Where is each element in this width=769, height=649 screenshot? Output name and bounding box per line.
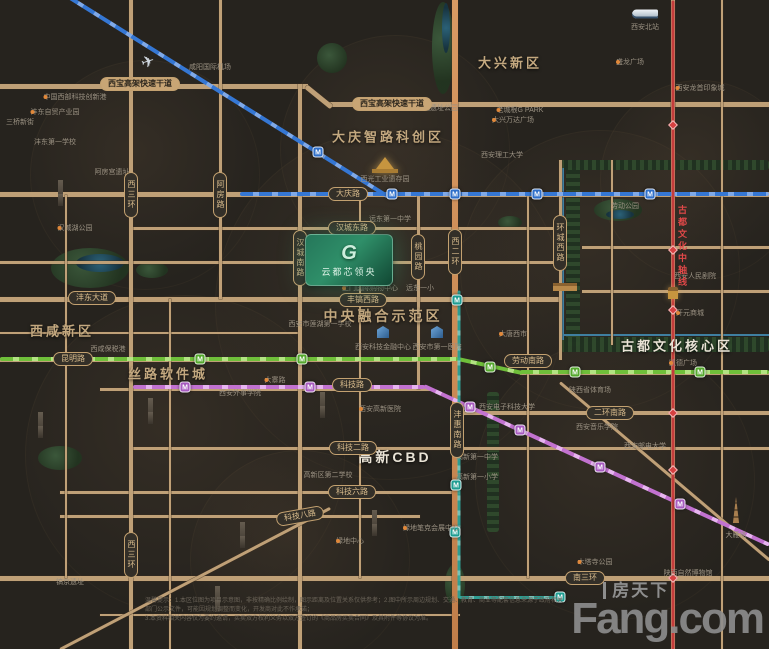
- poi-dot-icon: [578, 560, 582, 564]
- road-badge: 西宝高架快速干道: [100, 77, 180, 91]
- poi-label: 沣东自贸产业园: [31, 107, 80, 117]
- road-segment: [721, 0, 723, 649]
- park-area: [136, 262, 168, 278]
- road-badge: 科技路: [332, 378, 372, 392]
- poi-label: 大兴万达广场: [492, 115, 534, 125]
- poi-label: 劳动公园: [611, 201, 639, 211]
- road-segment: [298, 84, 302, 649]
- poi-label: 木塔寺公园: [578, 557, 613, 567]
- poi-label: 开元商城: [676, 308, 704, 318]
- road-badge: 科技二路: [329, 441, 377, 455]
- poi-label: 西安高新医院: [359, 404, 401, 414]
- district-label: 大兴新区: [478, 53, 542, 72]
- poi-label: 西安电子科技大学: [479, 402, 535, 412]
- poi-label: 高新区第二学校: [304, 470, 353, 480]
- disclaimer-text: 温馨提示：1.本区位图为项目示意图，非按精确比例绘制，图示距离及位置关系仅供参考…: [145, 597, 565, 624]
- road-badge: 沣东大道: [68, 291, 116, 305]
- road-badge: 汉城东路: [328, 221, 376, 235]
- poi-label: 绿地笔克会展中心: [403, 523, 459, 533]
- road-badge: 沣惠南路: [450, 402, 464, 458]
- metro-station-icon: M: [695, 367, 706, 378]
- poi-label: 陕西省体育场: [569, 385, 611, 395]
- road-segment: [60, 515, 420, 518]
- road-badge: 昆明路: [53, 352, 93, 366]
- poi-label: 西安市第一医院: [413, 342, 462, 352]
- fang-watermark: 房天下 Fang.com: [571, 582, 763, 639]
- metro-station-icon: M: [180, 382, 191, 393]
- road-badge: 西宝高架快速干道: [352, 97, 432, 111]
- road-badge: 阿房路: [213, 172, 227, 218]
- disclaimer-line-1: 温馨提示：1.本区位图为项目示意图，非按精确比例绘制，图示距离及位置关系仅供参考…: [145, 597, 565, 615]
- landmark-train-icon: [632, 10, 658, 19]
- poi-dot-icon: [359, 407, 363, 411]
- poi-label: 西安音乐学院: [576, 422, 618, 432]
- road-segment: [611, 160, 613, 345]
- poi-label: 汉城湖公园: [58, 223, 93, 233]
- road-badge: 大庆路: [328, 187, 368, 201]
- road-segment: [219, 0, 222, 299]
- metro-station-icon: M: [675, 499, 686, 510]
- metro-station-icon: M: [387, 189, 398, 200]
- metro-station-icon: M: [465, 402, 476, 413]
- poi-label: 高新第一小学: [456, 472, 498, 482]
- road-badge: 西二环: [448, 229, 462, 275]
- poi-dot-icon: [669, 361, 673, 365]
- poi-label: 西安理工大学: [481, 150, 523, 160]
- district-label: 大庆智路科创区: [332, 127, 444, 146]
- project-logo-emblem-icon: G: [341, 243, 357, 263]
- road-segment: [0, 261, 560, 264]
- poi-label: 大雁塔: [726, 530, 747, 540]
- poi-dot-icon: [336, 539, 340, 543]
- poi-label: 西安外事学院: [219, 388, 261, 398]
- poi-label: 中国西部科技创新港: [44, 92, 107, 102]
- poi-label: 远东一小: [406, 283, 434, 293]
- road-badge: 桃园路: [411, 234, 425, 280]
- park-area: [38, 446, 82, 470]
- landmark-palace-icon: [376, 157, 394, 169]
- poi-label: 陕西自然博物馆: [664, 568, 713, 578]
- metro-station-icon: M: [485, 362, 496, 373]
- metro-line-green: [520, 370, 769, 374]
- road-badge: 科技六路: [328, 485, 376, 499]
- disclaimer-line-2: 3.本资料相关内容仅为要约邀请，买卖双方权利义务以双方签订的《商品房买卖合同》及…: [145, 615, 565, 624]
- road-badge: 环城西路: [553, 215, 567, 271]
- project-name: 云都芯领央: [321, 265, 376, 278]
- road-badge: 劳动南路: [504, 354, 552, 368]
- metro-line-red: [672, 0, 675, 649]
- poi-label: 远东第一中学: [369, 214, 411, 224]
- metro-station-icon: M: [450, 189, 461, 200]
- poi-label: 盛龙广场: [616, 57, 644, 67]
- metro-station-icon: M: [313, 147, 324, 158]
- road-segment: [527, 194, 529, 578]
- metro-station-icon: M: [595, 462, 606, 473]
- metro-station-icon: M: [297, 354, 308, 365]
- poi-label: 西安北站: [631, 22, 659, 32]
- poi-label: 西安龙首印象城: [676, 83, 725, 93]
- metro-station-icon: M: [515, 425, 526, 436]
- district-label: 西咸新区: [30, 321, 94, 340]
- poi-label: 沣东第一学校: [34, 137, 76, 147]
- poi-label: 老城根G PARK: [497, 105, 544, 115]
- district-label: 中央融合示范区: [324, 306, 443, 326]
- city-wall-greenbelt: [560, 160, 769, 170]
- poi-dot-icon: [265, 378, 269, 382]
- park-area: [317, 43, 347, 73]
- poi-dot-icon: [616, 60, 620, 64]
- metro-station-icon: M: [452, 295, 463, 306]
- fang-watermark-en: Fang.com: [571, 599, 763, 639]
- poi-label: 咸阳国际机场: [189, 62, 231, 72]
- metro-station-icon: M: [645, 189, 656, 200]
- poi-dot-icon: [403, 526, 407, 530]
- water-area: [442, 3, 450, 53]
- poi-label: 凯德广场: [669, 358, 697, 368]
- poi-label: 西光工业遗存园: [361, 174, 410, 184]
- road-badge: 丰镐西路: [339, 293, 387, 307]
- poi-dot-icon: [58, 226, 62, 230]
- poi-dot-icon: [497, 108, 501, 112]
- poi-dot-icon: [499, 332, 503, 336]
- poi-label: 西咸保税港: [91, 344, 126, 354]
- poi-dot-icon: [676, 86, 680, 90]
- poi-dot-icon: [342, 286, 346, 290]
- road-badge: 二环南路: [586, 406, 634, 420]
- map-canvas: MMMMMMMMMMMMMMMMMMMM✈西宝高架快速干道西宝高架快速干道大庆路…: [0, 0, 769, 649]
- road-segment: [65, 195, 67, 578]
- poi-label: 大唐西市: [499, 329, 527, 339]
- road-segment: [0, 576, 769, 581]
- poi-dot-icon: [44, 95, 48, 99]
- road-segment: [60, 491, 460, 494]
- metro-station-icon: M: [305, 382, 316, 393]
- metro-station-icon: M: [570, 367, 581, 378]
- metro-station-icon: M: [532, 189, 543, 200]
- metro-line-pink: [133, 385, 425, 389]
- poi-dot-icon: [492, 118, 496, 122]
- district-label: 古都文化核心区: [621, 336, 733, 355]
- road-badge: 西三环: [124, 172, 138, 218]
- project-logo-card: G 云都芯领央: [305, 234, 393, 286]
- poi-dot-icon: [676, 311, 680, 315]
- poi-label: 西安邮电大学: [624, 441, 666, 451]
- district-label: 丝路软件城: [128, 364, 208, 383]
- poi-label: 大寨路: [265, 375, 286, 385]
- poi-label: 绿地中心: [336, 536, 364, 546]
- metro-line-blue: [240, 192, 769, 196]
- poi-label: 西安科技金融中心: [355, 342, 411, 352]
- landmark-gate-icon: [553, 283, 577, 291]
- poi-label: 三桥新街: [6, 117, 34, 127]
- road-badge: 西三环: [124, 532, 138, 578]
- poi-label: 镐京遗址: [56, 577, 84, 587]
- poi-dot-icon: [31, 110, 35, 114]
- culture-axis-label: 古都文化中轴线: [676, 205, 689, 289]
